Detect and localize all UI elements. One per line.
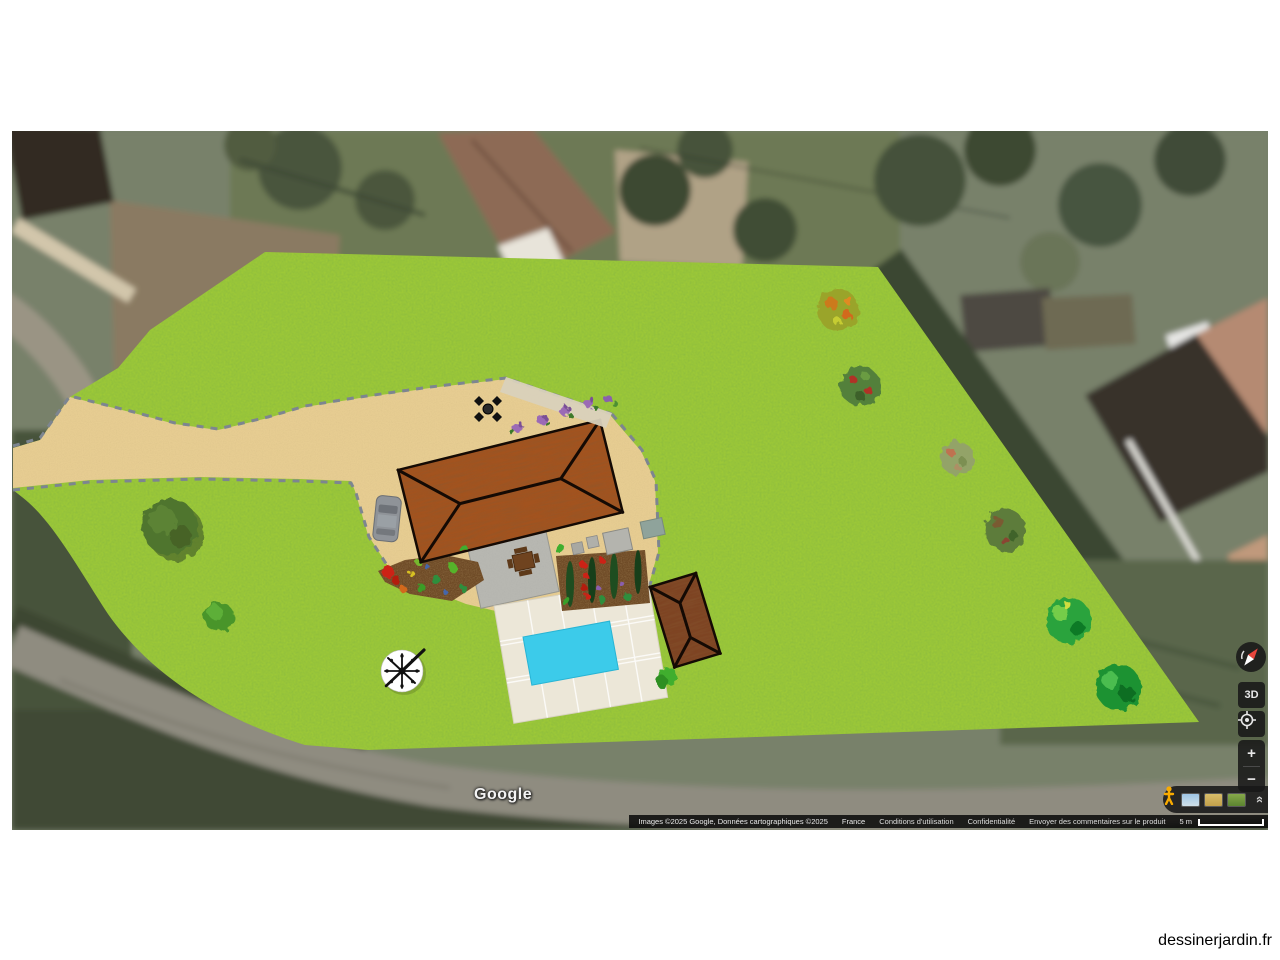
tree-cluster bbox=[874, 134, 966, 226]
my-location-icon bbox=[1238, 711, 1256, 729]
terms-link[interactable]: Conditions d'utilisation bbox=[879, 817, 953, 826]
feedback-link[interactable]: Envoyer des commentaires sur le produit bbox=[1029, 817, 1165, 826]
dark-green-bush[interactable] bbox=[1095, 664, 1141, 710]
flower-bed-right[interactable] bbox=[556, 550, 650, 611]
tree-cluster bbox=[619, 154, 691, 226]
pegman-icon bbox=[1163, 786, 1175, 805]
imagery-thumbnail-sky[interactable] bbox=[1181, 793, 1200, 807]
tree-cluster bbox=[733, 198, 797, 262]
zoom-in-button[interactable]: + bbox=[1238, 741, 1265, 766]
tuft bbox=[555, 544, 565, 554]
tuft bbox=[459, 544, 467, 552]
pale-shrub[interactable] bbox=[940, 441, 974, 475]
car[interactable] bbox=[372, 495, 402, 542]
collapse-chevron[interactable]: » bbox=[1251, 796, 1266, 803]
attribution-bar: Images ©2025 Google, Données cartographi… bbox=[629, 815, 1268, 828]
red-green-shrub[interactable] bbox=[840, 366, 880, 406]
garden-plan-canvas bbox=[12, 131, 1268, 830]
garden-plot bbox=[1042, 294, 1136, 350]
imagery-bar: » bbox=[1163, 786, 1268, 813]
bright-green-bush[interactable] bbox=[1045, 597, 1091, 643]
site-watermark: dessinerjardin.fr bbox=[1158, 932, 1272, 950]
my-location-button[interactable] bbox=[1238, 711, 1265, 737]
shed-roof bbox=[960, 288, 1056, 352]
zoom-control: + − bbox=[1238, 740, 1265, 792]
compass-control[interactable] bbox=[1236, 642, 1266, 672]
scale-bar bbox=[1198, 819, 1264, 826]
imagery-thumbnail-terrain[interactable] bbox=[1204, 793, 1223, 807]
scale-label: 5 m bbox=[1179, 817, 1192, 826]
google-logo: Google bbox=[474, 786, 532, 804]
olive-shrub[interactable] bbox=[984, 509, 1026, 551]
map-viewport[interactable]: Google Images ©2025 Google, Données cart… bbox=[12, 131, 1268, 830]
clearing bbox=[1020, 232, 1080, 292]
imagery-credit: Images ©2025 Google, Données cartographi… bbox=[638, 817, 828, 826]
privacy-link[interactable]: Confidentialité bbox=[968, 817, 1016, 826]
imagery-thumbnail-map[interactable] bbox=[1227, 793, 1246, 807]
orange-shrub[interactable] bbox=[817, 289, 859, 331]
small-bush[interactable] bbox=[204, 602, 234, 632]
map-scale: 5 m bbox=[1179, 817, 1264, 826]
region-label: France bbox=[842, 817, 865, 826]
tree-cluster bbox=[1058, 163, 1142, 247]
tilt-3d-button[interactable]: 3D bbox=[1238, 682, 1265, 708]
compass-needle-icon bbox=[1236, 642, 1266, 672]
tree-cluster bbox=[355, 170, 415, 230]
